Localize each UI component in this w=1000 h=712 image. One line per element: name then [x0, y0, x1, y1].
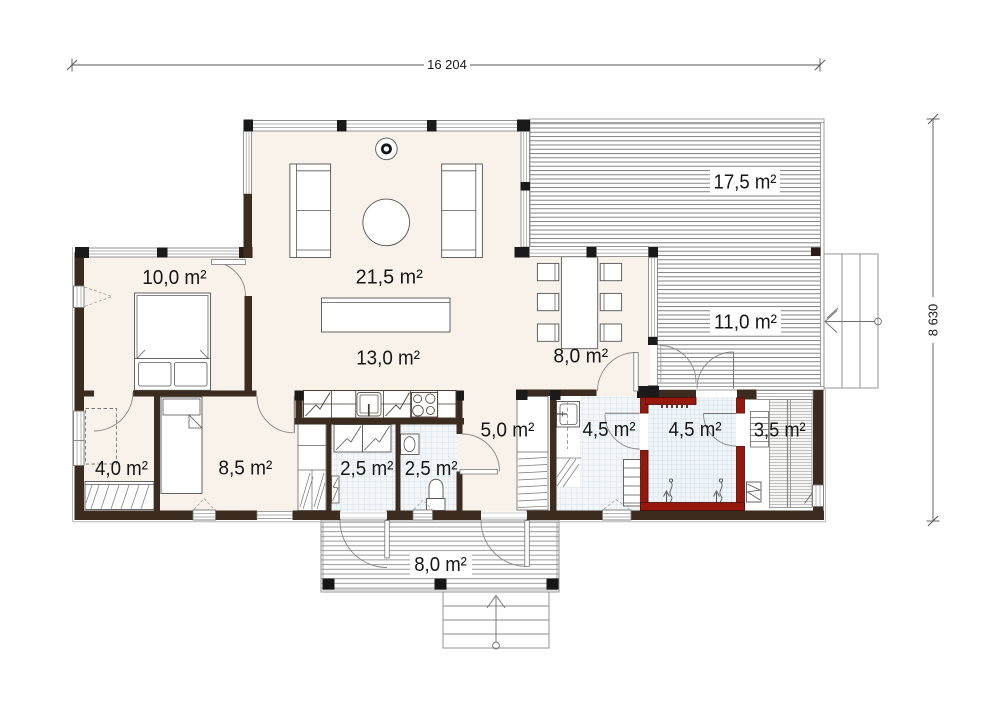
svg-text:13,0 m²: 13,0 m² — [356, 347, 420, 370]
svg-text:8 630: 8 630 — [926, 304, 941, 337]
svg-text:8,0 m²: 8,0 m² — [414, 553, 467, 576]
svg-text:4,0 m²: 4,0 m² — [95, 457, 148, 480]
svg-text:16 204: 16 204 — [427, 57, 467, 72]
svg-text:10,0 m²: 10,0 m² — [142, 266, 207, 289]
svg-text:8,5 m²: 8,5 m² — [218, 457, 272, 480]
svg-text:2,5 m²: 2,5 m² — [405, 457, 458, 480]
svg-text:11,0 m²: 11,0 m² — [714, 310, 777, 333]
svg-text:17,5 m²: 17,5 m² — [714, 170, 777, 193]
svg-text:4,5 m²: 4,5 m² — [583, 418, 636, 441]
svg-text:5,0 m²: 5,0 m² — [481, 419, 535, 442]
svg-text:8,0 m²: 8,0 m² — [553, 344, 608, 367]
svg-text:3,5 m²: 3,5 m² — [754, 419, 806, 442]
svg-text:21,5 m²: 21,5 m² — [356, 266, 423, 289]
svg-text:2,5 m²: 2,5 m² — [340, 457, 393, 480]
svg-text:4,5 m²: 4,5 m² — [669, 418, 722, 441]
